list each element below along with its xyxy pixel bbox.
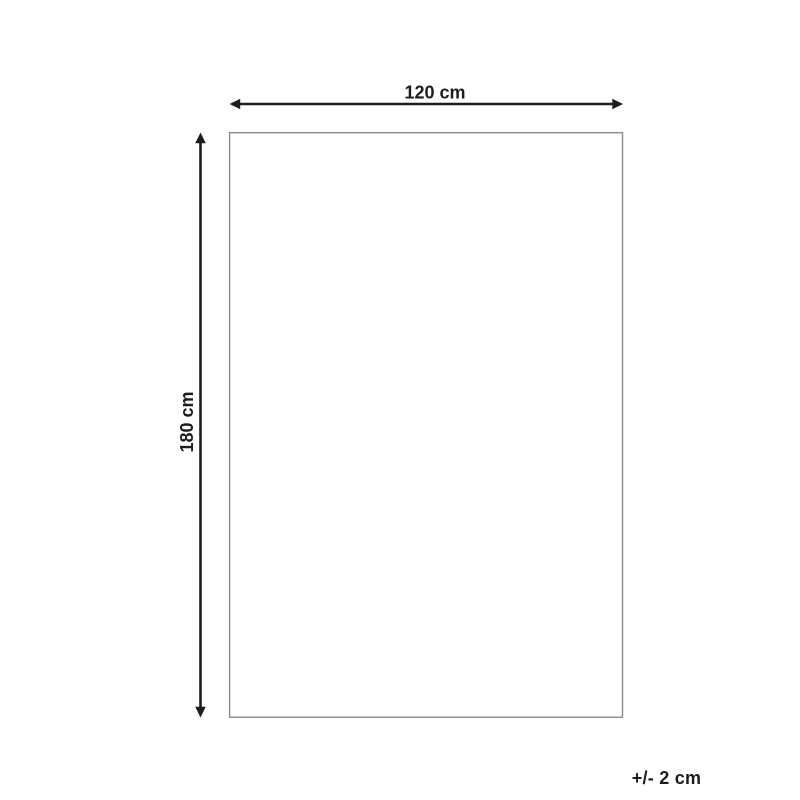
svg-text:120 cm: 120 cm: [404, 83, 465, 103]
svg-text:180 cm: 180 cm: [177, 391, 197, 452]
svg-text:+/- 2 cm: +/- 2 cm: [632, 768, 702, 788]
